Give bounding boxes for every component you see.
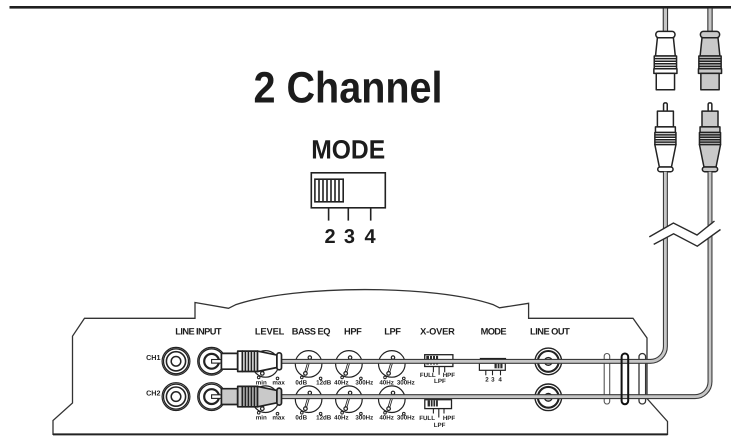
svg-text:12dB: 12dB [316,379,332,386]
svg-text:LPF: LPF [384,326,401,336]
svg-text:4: 4 [365,226,377,248]
svg-text:min: min [256,379,267,386]
svg-text:0dB: 0dB [295,379,307,386]
svg-text:40Hz: 40Hz [334,415,348,422]
svg-text:40Hz: 40Hz [334,379,348,386]
svg-text:MODE: MODE [311,134,385,164]
svg-text:2 Channel: 2 Channel [254,64,443,113]
svg-text:HPF: HPF [443,415,456,422]
svg-text:3: 3 [491,376,495,383]
svg-text:300Hz: 300Hz [397,379,415,386]
svg-text:FULL: FULL [419,415,435,422]
svg-text:min: min [256,415,267,422]
svg-text:300Hz: 300Hz [397,415,415,422]
svg-text:300Hz: 300Hz [355,379,373,386]
svg-text:3: 3 [344,226,355,248]
svg-text:LPF: LPF [434,422,446,429]
svg-text:4: 4 [498,376,502,383]
svg-text:300Hz: 300Hz [355,415,373,422]
svg-text:CH1: CH1 [146,353,160,362]
svg-text:LPF: LPF [434,378,446,385]
svg-text:0dB: 0dB [295,415,307,422]
svg-text:2: 2 [324,226,335,248]
svg-text:MODE: MODE [481,326,507,336]
svg-text:CH2: CH2 [146,388,160,397]
svg-text:40Hz: 40Hz [379,415,393,422]
svg-text:max: max [272,415,285,422]
svg-text:40Hz: 40Hz [379,379,393,386]
svg-text:LINE INPUT: LINE INPUT [175,326,222,336]
svg-text:X-OVER: X-OVER [420,326,455,336]
svg-text:LEVEL: LEVEL [255,326,285,336]
svg-text:LINE OUT: LINE OUT [530,326,570,336]
svg-text:12dB: 12dB [316,415,332,422]
svg-text:HPF: HPF [344,326,362,336]
svg-text:max: max [272,379,285,386]
svg-text:2: 2 [485,376,489,383]
svg-text:BASS EQ: BASS EQ [292,326,331,336]
